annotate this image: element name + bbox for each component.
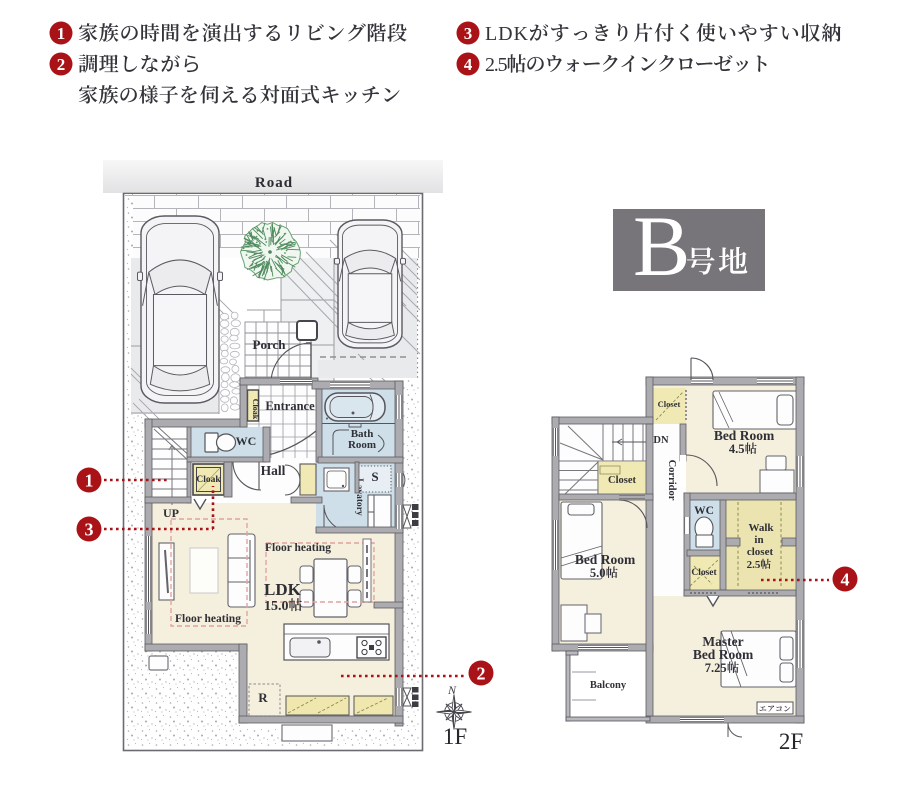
svg-text:1: 1 [85,471,94,491]
svg-text:Bed Room: Bed Room [693,647,754,662]
svg-text:Balcony: Balcony [590,680,627,691]
svg-text:号地: 号地 [686,246,750,279]
svg-text:3: 3 [85,520,94,540]
svg-text:Corridor: Corridor [666,460,677,501]
svg-text:Entrance: Entrance [265,399,315,413]
svg-text:DN: DN [653,435,669,446]
svg-text:closet: closet [747,546,774,558]
svg-text:1F: 1F [443,724,467,749]
svg-text:N: N [447,683,457,697]
svg-text:4: 4 [841,570,850,590]
svg-text:1: 1 [57,24,66,43]
svg-text:Porch: Porch [253,337,287,352]
svg-text:家族の様子を伺える対面式キッチン: 家族の様子を伺える対面式キッチン [78,84,401,107]
svg-text:LDK: LDK [264,580,302,599]
svg-text:Hall: Hall [261,463,286,478]
svg-text:Bed Room: Bed Room [714,428,775,443]
svg-text:Road: Road [255,175,293,191]
svg-text:5.0帖: 5.0帖 [590,566,619,580]
svg-text:WC: WC [236,434,257,448]
svg-text:Bed Room: Bed Room [575,552,636,567]
svg-text:Floor heating: Floor heating [175,613,241,625]
svg-text:2F: 2F [779,729,803,754]
svg-text:2.5帖のウォークインクローゼット: 2.5帖のウォークインクローゼット [485,54,770,76]
svg-text:Walk: Walk [748,522,774,534]
svg-text:Room: Room [348,439,376,451]
svg-text:WC: WC [694,505,714,517]
svg-text:調理しながら: 調理しながら [78,54,202,76]
svg-text:LDKがすっきり片付く使いやすい収納: LDKがすっきり片付く使いやすい収納 [485,22,842,45]
svg-text:4: 4 [464,55,473,74]
svg-text:エアコン: エアコン [759,705,791,714]
svg-text:2.5帖: 2.5帖 [747,558,773,571]
svg-text:Cloak: Cloak [196,475,221,485]
svg-text:Cloak: Cloak [251,399,260,420]
svg-text:in: in [754,534,763,546]
svg-text:Floor heating: Floor heating [265,542,331,554]
svg-text:R: R [258,690,268,705]
svg-text:家族の時間を演出するリビング階段: 家族の時間を演出するリビング階段 [78,22,408,45]
svg-text:15.0帖: 15.0帖 [264,598,303,614]
svg-text:2: 2 [477,664,486,684]
svg-text:Closet: Closet [691,568,717,578]
svg-text:Closet: Closet [658,399,681,409]
svg-text:Closet: Closet [608,475,636,486]
svg-text:B: B [633,198,690,294]
svg-text:3: 3 [464,24,473,43]
svg-text:4.5帖: 4.5帖 [729,442,758,456]
svg-text:7.25帖: 7.25帖 [705,661,740,675]
svg-text:S: S [371,469,378,484]
svg-text:2: 2 [57,55,66,74]
svg-text:UP: UP [163,506,179,520]
